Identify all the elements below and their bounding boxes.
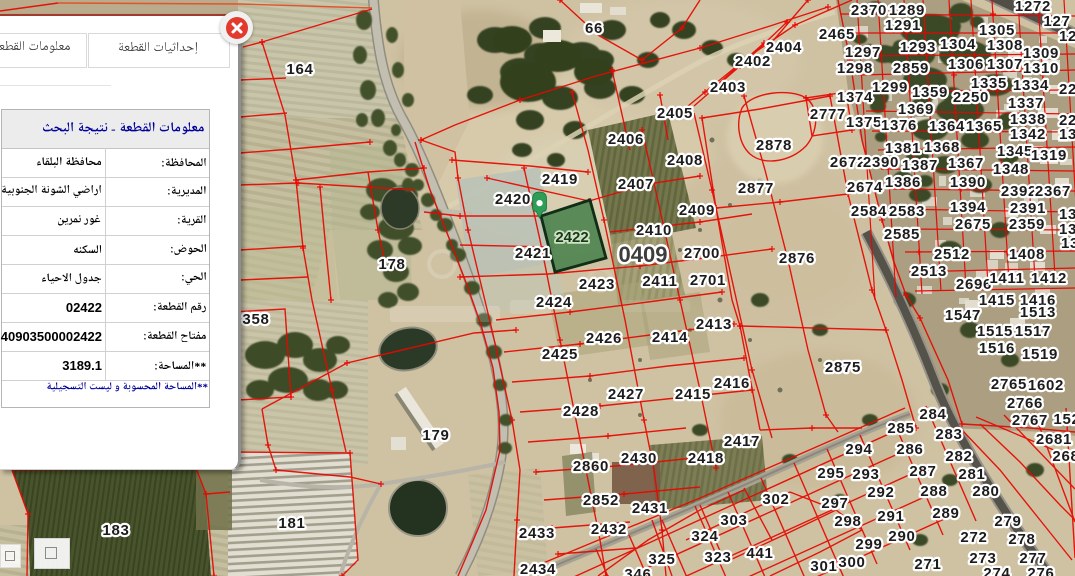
svg-text:2700: 2700 — [684, 245, 720, 262]
svg-text:2701: 2701 — [690, 272, 726, 289]
svg-text:164: 164 — [286, 61, 313, 78]
svg-text:2425: 2425 — [542, 346, 578, 363]
svg-text:2512: 2512 — [934, 246, 970, 263]
svg-text:2876: 2876 — [779, 250, 815, 267]
svg-text:2433: 2433 — [519, 525, 555, 542]
svg-text:2681: 2681 — [1036, 431, 1072, 448]
svg-text:1359: 1359 — [912, 84, 948, 101]
svg-text:2428: 2428 — [563, 403, 599, 420]
svg-text:1517: 1517 — [1015, 323, 1051, 340]
svg-text:346: 346 — [624, 566, 651, 576]
svg-text:292: 292 — [867, 484, 894, 501]
svg-text:1390: 1390 — [950, 174, 986, 191]
svg-text:1293: 1293 — [900, 39, 936, 56]
svg-text:0409: 0409 — [619, 242, 668, 267]
svg-text:2405: 2405 — [657, 105, 693, 122]
svg-text:1412: 1412 — [1031, 270, 1067, 287]
svg-text:276: 276 — [1027, 565, 1054, 576]
svg-text:181: 181 — [278, 515, 305, 532]
svg-text:152: 152 — [1053, 411, 1075, 428]
svg-text:2420: 2420 — [495, 191, 531, 208]
svg-text:1394: 1394 — [950, 199, 986, 216]
svg-text:2409: 2409 — [679, 202, 715, 219]
svg-text:179: 179 — [422, 427, 449, 444]
svg-text:1408: 1408 — [1009, 246, 1045, 263]
svg-text:300: 300 — [838, 554, 865, 571]
svg-text:2852: 2852 — [583, 492, 619, 509]
svg-text:1386: 1386 — [885, 174, 921, 191]
svg-text:281: 281 — [958, 466, 985, 483]
svg-text:1348: 1348 — [993, 161, 1029, 178]
svg-text:287: 287 — [909, 463, 936, 480]
svg-text:1365: 1365 — [966, 118, 1002, 135]
svg-text:2413: 2413 — [696, 316, 732, 333]
svg-text:2513: 2513 — [911, 263, 947, 280]
svg-text:1519: 1519 — [1022, 346, 1058, 363]
svg-text:2418: 2418 — [688, 450, 724, 467]
svg-text:2859: 2859 — [893, 60, 929, 77]
svg-text:2406: 2406 — [608, 131, 644, 148]
svg-text:1547: 1547 — [945, 307, 981, 324]
svg-text:297: 297 — [821, 495, 848, 512]
svg-text:2431: 2431 — [632, 500, 668, 517]
svg-text:2427: 2427 — [608, 386, 644, 403]
svg-text:1345: 1345 — [997, 143, 1033, 160]
svg-text:272: 272 — [960, 529, 987, 546]
svg-text:2392: 2392 — [1001, 183, 1037, 200]
svg-text:2421: 2421 — [515, 245, 551, 262]
svg-text:1291: 1291 — [885, 17, 921, 34]
svg-text:2767: 2767 — [1012, 412, 1048, 429]
svg-text:2465: 2465 — [819, 26, 855, 43]
svg-text:1513: 1513 — [1020, 304, 1056, 321]
svg-text:298: 298 — [834, 513, 861, 530]
svg-text:22: 22 — [1059, 81, 1075, 98]
svg-text:2875: 2875 — [825, 359, 861, 376]
svg-text:66: 66 — [585, 20, 603, 37]
svg-text:2585: 2585 — [884, 226, 920, 243]
svg-text:290: 290 — [888, 528, 915, 545]
svg-text:274: 274 — [983, 565, 1010, 576]
svg-text:2672: 2672 — [830, 154, 866, 171]
svg-text:1307: 1307 — [987, 56, 1023, 73]
svg-text:2765: 2765 — [991, 376, 1027, 393]
svg-text:2404: 2404 — [766, 39, 802, 56]
svg-text:2391: 2391 — [1010, 200, 1046, 217]
svg-text:2422: 2422 — [555, 229, 588, 246]
svg-text:2426: 2426 — [586, 330, 622, 347]
svg-text:302: 302 — [762, 491, 789, 508]
svg-text:2415: 2415 — [675, 386, 711, 403]
svg-text:1334: 1334 — [1013, 77, 1049, 94]
svg-text:2367: 2367 — [1035, 183, 1071, 200]
svg-text:288: 288 — [920, 483, 947, 500]
svg-text:12: 12 — [1059, 28, 1075, 45]
svg-text:1415: 1415 — [979, 292, 1015, 309]
svg-text:2370: 2370 — [851, 2, 887, 19]
svg-text:301: 301 — [810, 558, 837, 575]
svg-text:13: 13 — [1059, 126, 1075, 143]
svg-text:2411: 2411 — [642, 273, 677, 290]
svg-text:324: 324 — [691, 528, 718, 545]
svg-text:2675: 2675 — [955, 216, 991, 233]
svg-text:1306: 1306 — [948, 56, 984, 73]
svg-text:2583: 2583 — [889, 203, 925, 220]
svg-text:2423: 2423 — [579, 276, 615, 293]
svg-text:1515: 1515 — [977, 323, 1013, 340]
svg-text:183: 183 — [102, 522, 129, 539]
svg-text:280: 280 — [972, 483, 999, 500]
svg-text:2416: 2416 — [714, 375, 750, 392]
svg-text:2430: 2430 — [621, 450, 657, 467]
svg-text:1374: 1374 — [837, 89, 873, 106]
svg-text:1297: 1297 — [845, 44, 881, 61]
svg-text:284: 284 — [919, 406, 946, 423]
svg-text:286: 286 — [896, 441, 923, 458]
svg-text:358: 358 — [242, 311, 269, 328]
svg-text:178: 178 — [378, 256, 405, 273]
svg-text:293: 293 — [852, 466, 879, 483]
svg-text:2414: 2414 — [652, 329, 688, 346]
svg-text:1516: 1516 — [979, 340, 1015, 357]
svg-text:1299: 1299 — [872, 79, 908, 96]
svg-text:2877: 2877 — [738, 180, 774, 197]
svg-text:2777: 2777 — [810, 106, 846, 123]
svg-text:2696: 2696 — [956, 276, 992, 293]
svg-text:2408: 2408 — [667, 152, 703, 169]
svg-text:303: 303 — [720, 512, 747, 529]
svg-text:1342: 1342 — [1010, 126, 1046, 143]
svg-text:1367: 1367 — [948, 155, 984, 172]
svg-text:2390: 2390 — [863, 154, 899, 171]
svg-text:294: 294 — [845, 441, 872, 458]
svg-text:268: 268 — [1052, 448, 1075, 465]
svg-text:299: 299 — [855, 536, 882, 553]
svg-text:1376: 1376 — [881, 117, 917, 134]
svg-text:291: 291 — [877, 508, 904, 525]
svg-text:295: 295 — [817, 465, 844, 482]
svg-text:2766: 2766 — [1007, 395, 1043, 412]
svg-text:2434: 2434 — [520, 561, 556, 576]
svg-text:323: 323 — [704, 549, 731, 566]
svg-text:1319: 1319 — [1031, 147, 1067, 164]
svg-text:278: 278 — [1008, 531, 1035, 548]
svg-text:1308: 1308 — [987, 37, 1023, 54]
svg-text:271: 271 — [914, 556, 941, 573]
svg-text:2403: 2403 — [710, 79, 746, 96]
svg-text:1304: 1304 — [940, 36, 976, 53]
svg-text:1375: 1375 — [846, 114, 882, 131]
svg-text:2584: 2584 — [851, 203, 887, 220]
svg-text:13: 13 — [1061, 235, 1075, 252]
svg-text:285: 285 — [887, 420, 914, 437]
svg-text:2878: 2878 — [756, 137, 792, 154]
svg-text:2424: 2424 — [536, 294, 572, 311]
svg-text:1369: 1369 — [898, 101, 934, 118]
svg-text:279: 279 — [994, 513, 1021, 530]
svg-text:1298: 1298 — [837, 60, 873, 77]
svg-text:1337: 1337 — [1008, 95, 1044, 112]
svg-text:2250: 2250 — [953, 89, 989, 106]
svg-text:2417: 2417 — [724, 433, 760, 450]
svg-text:2410: 2410 — [636, 222, 672, 239]
svg-text:1364: 1364 — [929, 118, 965, 135]
svg-text:441: 441 — [746, 545, 773, 562]
svg-text:282: 282 — [945, 448, 972, 465]
svg-text:283: 283 — [935, 426, 962, 443]
svg-text:2432: 2432 — [591, 521, 627, 538]
svg-text:325: 325 — [648, 551, 675, 568]
svg-text:1310: 1310 — [1023, 60, 1059, 77]
svg-text:289: 289 — [932, 505, 959, 522]
svg-text:1411: 1411 — [989, 270, 1024, 287]
svg-text:2419: 2419 — [542, 171, 578, 188]
svg-text:2407: 2407 — [618, 176, 654, 193]
svg-text:2359: 2359 — [1009, 216, 1045, 233]
svg-text:2674: 2674 — [847, 179, 883, 196]
svg-text:1602: 1602 — [1028, 377, 1064, 394]
svg-text:1387: 1387 — [902, 157, 938, 174]
svg-text:2860: 2860 — [573, 458, 609, 475]
svg-text:1368: 1368 — [924, 139, 960, 156]
